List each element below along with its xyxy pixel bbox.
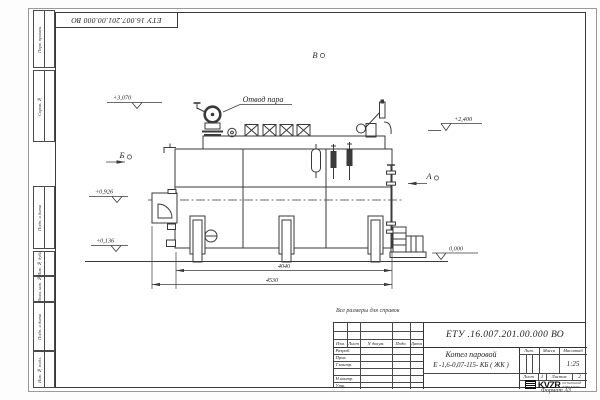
scale-label: Масштаб — [559, 347, 587, 354]
elevation-label-0000: 0,000 — [449, 246, 464, 253]
steam-drum — [203, 136, 385, 149]
scale-value: 1:25 — [559, 354, 587, 373]
lit-label: Лит. — [519, 347, 539, 354]
boiler-linework — [85, 53, 482, 289]
dimension-label-4040: 4040 — [278, 263, 290, 270]
view-label-v: В — [312, 50, 317, 60]
row-razrab: Разраб. — [334, 347, 362, 354]
support-legs — [190, 216, 383, 262]
col-izm: Изм. — [334, 339, 347, 347]
title-block: Изм. Лист N докум. Подп. Дата Разраб. Пр… — [333, 322, 586, 388]
view-b-ring — [127, 155, 131, 159]
row-prov: Пров. — [334, 354, 362, 361]
sheets-label: Листов — [546, 373, 572, 380]
manhole — [205, 230, 217, 242]
col-data: Дата — [410, 339, 423, 347]
mass-label: Масса — [539, 347, 559, 354]
kvzr-logo-subtext: КОТЕЛЬНЫЙ ЗАВОД РЭП — [562, 381, 581, 389]
kvzr-logo-icon — [525, 380, 536, 389]
sheets-value: 2 — [572, 373, 587, 380]
sheet-value: 1 — [538, 373, 546, 380]
scanned-drawing-page: { "sheet": { "ink_color": "#3a3a3a", "st… — [0, 0, 600, 400]
feed-pump-unit — [390, 227, 426, 258]
product-name-line2: Е -1,6-0,07-115- КБ ( ЖК ) — [423, 359, 519, 372]
col-ndocum: N докум. — [360, 339, 392, 347]
view-v-ring — [320, 53, 324, 57]
view-arrows — [106, 160, 427, 185]
view-a-ring — [434, 176, 438, 180]
view-label-b: Б — [118, 150, 124, 160]
sheet-label: Лист — [519, 373, 538, 380]
lever-safety-valve — [357, 100, 392, 138]
drum-dome — [228, 128, 236, 136]
kvzr-logo-text: KVZR — [538, 380, 561, 389]
reference-note: Все размеры для справок — [336, 308, 400, 314]
dimension-label-4530: 4530 — [266, 277, 278, 284]
steam-outlet-label: Отвод пара — [243, 95, 284, 104]
row-nkontr: Н.контр. — [334, 375, 362, 382]
elevation-label-0136: +0,136 — [96, 238, 115, 245]
steam-outlet-valve — [194, 103, 224, 135]
view-label-a: А — [425, 171, 432, 181]
drum-hatches — [245, 125, 310, 137]
col-list: Лист — [347, 339, 360, 347]
row-utv: Утв. — [334, 382, 362, 389]
doc-number: ЕТУ .16.007.201.00.000 ВО — [423, 323, 587, 347]
elevation-label-2400: +2,400 — [454, 116, 473, 123]
steam-outlet-leader — [223, 105, 292, 113]
col-podp: Подп. — [392, 339, 410, 347]
burner-box — [152, 190, 177, 224]
elevation-label-0926: +0,926 — [95, 189, 114, 196]
company-logo: KVZR КОТЕЛЬНЫЙ ЗАВОД РЭП — [519, 380, 587, 389]
row-tkontr: Т.контр. — [334, 361, 362, 368]
elevation-label-3070: +3,070 — [113, 95, 132, 102]
